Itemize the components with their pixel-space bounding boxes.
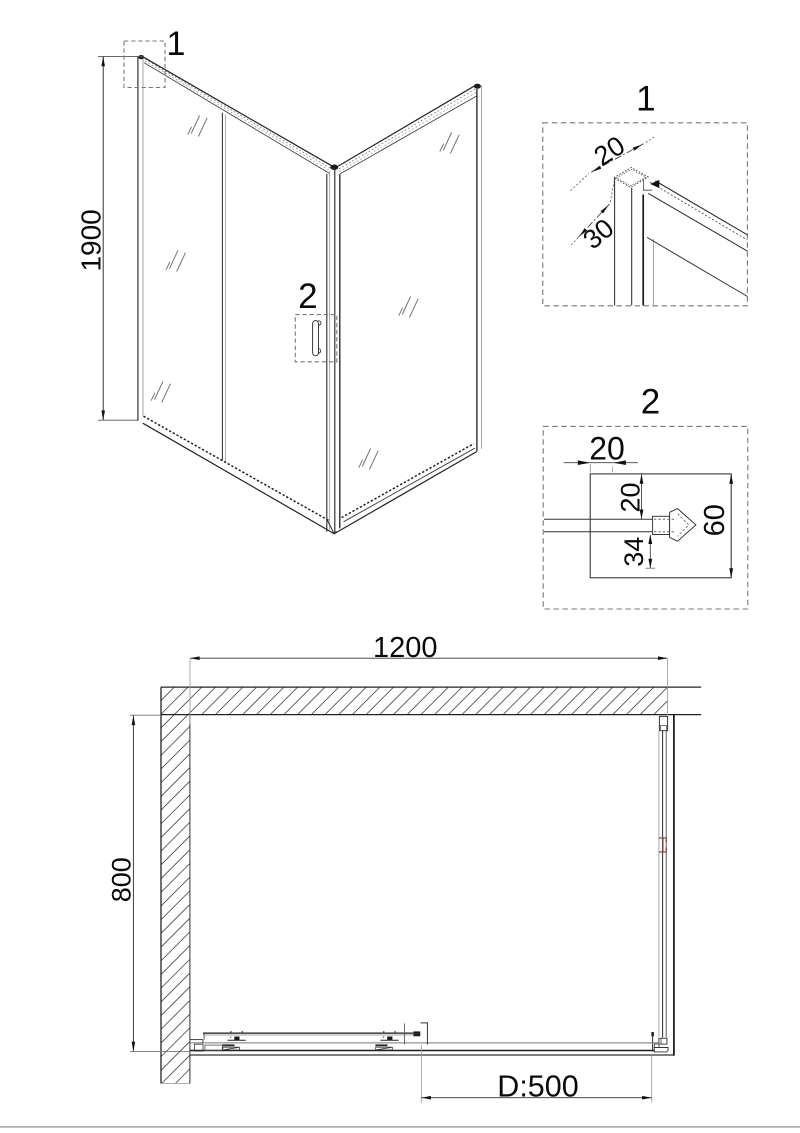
svg-text:34: 34 [619, 537, 649, 567]
svg-text:1: 1 [167, 25, 186, 63]
svg-text:2: 2 [641, 382, 660, 421]
svg-text:20: 20 [589, 430, 625, 466]
svg-text:20: 20 [616, 482, 646, 512]
svg-text:60: 60 [699, 504, 731, 536]
svg-text:1: 1 [636, 80, 655, 119]
svg-text:2: 2 [298, 277, 317, 316]
svg-text:1900: 1900 [75, 209, 106, 271]
svg-text:1200: 1200 [373, 632, 438, 664]
svg-text:800: 800 [107, 857, 137, 902]
svg-text:D:500: D:500 [497, 1069, 578, 1103]
